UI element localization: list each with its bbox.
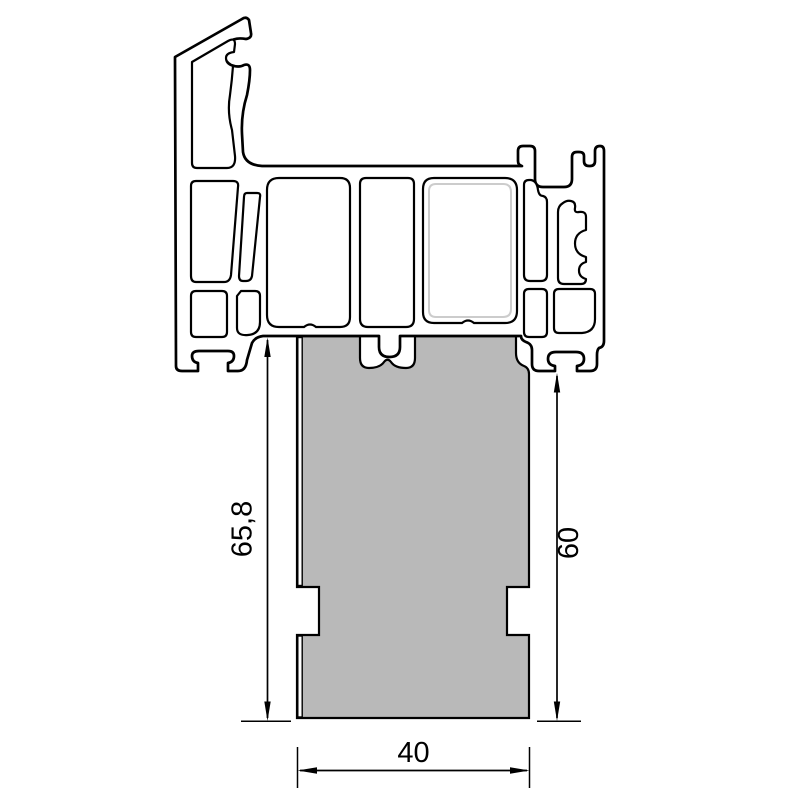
dimension-height-total: 65,8: [227, 338, 292, 722]
chamber-right-tall: [524, 180, 547, 281]
window-profile-group: [175, 18, 604, 371]
chamber-main-left: [267, 178, 350, 327]
dimension-height-right: 60: [537, 373, 585, 721]
technical-drawing-canvas: 65,8 60 40: [0, 0, 800, 800]
arrow-up-icon: [554, 373, 560, 393]
infill-block: [297, 336, 529, 718]
chamber-reinforcement: [423, 178, 517, 323]
arrow-left-icon: [298, 767, 318, 773]
block-edge-strip-lower: [298, 636, 302, 717]
dim-label-height-total: 65,8: [227, 501, 259, 557]
arrow-right-icon: [510, 767, 530, 773]
block-edge-strip-upper: [298, 338, 302, 586]
profile-drawing-svg: 65,8 60 40: [0, 0, 800, 800]
dimension-width-bottom: 40: [298, 737, 530, 788]
chamber-right-small-left: [524, 289, 547, 337]
chamber-upstand-tall: [191, 181, 238, 282]
chamber-upstand-small-left: [191, 291, 227, 337]
chamber-main-middle: [360, 178, 414, 327]
infill-block-group: [297, 336, 529, 718]
arrow-down-icon: [264, 702, 270, 722]
chamber-nose: [192, 40, 235, 168]
dim-label-height-right: 60: [553, 527, 585, 559]
chamber-upstand-small-right: [237, 291, 260, 335]
arrow-down-icon: [554, 702, 560, 722]
chamber-right-small-right: [554, 289, 595, 333]
dim-label-width-bottom: 40: [397, 737, 429, 769]
arrow-up-icon: [264, 338, 270, 358]
